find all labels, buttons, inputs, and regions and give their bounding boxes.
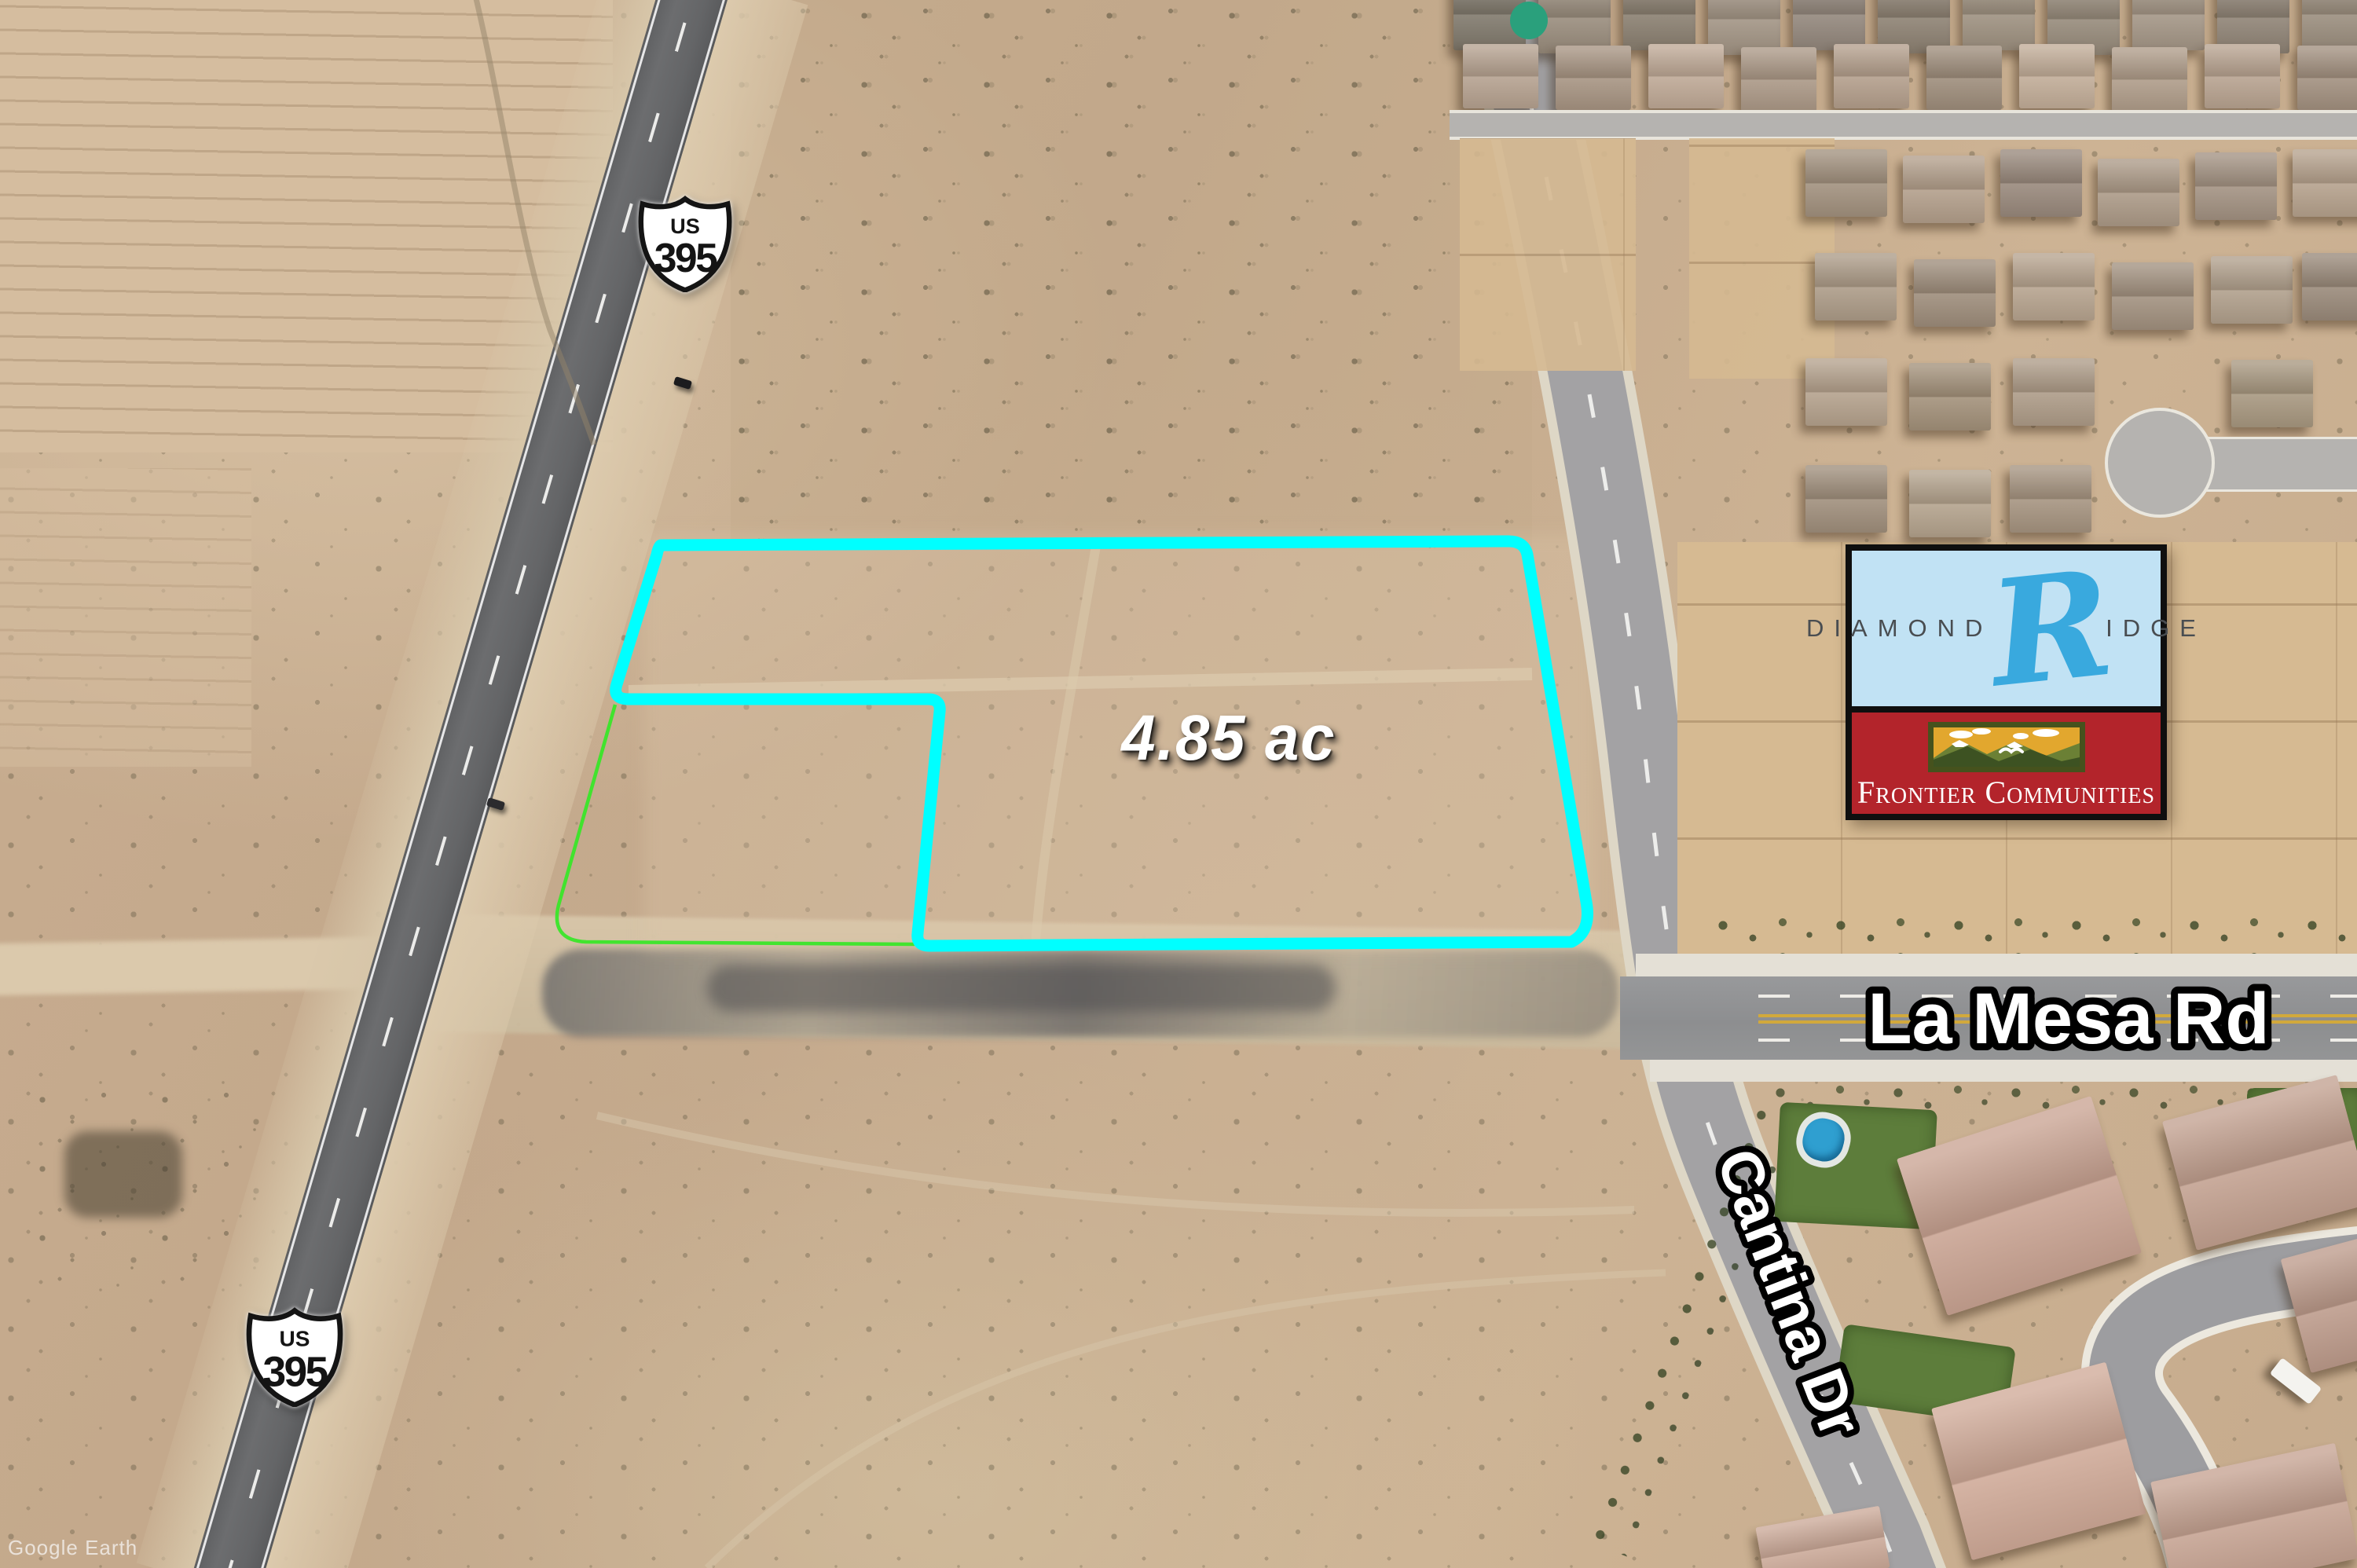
house bbox=[2010, 465, 2091, 533]
dirt-track bbox=[1036, 546, 1096, 943]
house bbox=[2000, 149, 2082, 217]
house bbox=[2211, 256, 2293, 324]
house bbox=[2112, 47, 2187, 112]
house bbox=[1815, 253, 1897, 321]
house bbox=[2205, 44, 2280, 108]
shield-number: 395 bbox=[263, 1349, 328, 1395]
house bbox=[2112, 262, 2194, 330]
house bbox=[2297, 46, 2357, 110]
house bbox=[1793, 0, 1865, 50]
house bbox=[2302, 0, 2357, 50]
dirt-track bbox=[629, 674, 1532, 691]
sign-word-idge: IDGE bbox=[2106, 614, 2206, 643]
la-mesa-asphalt bbox=[1620, 976, 2357, 1060]
diamond-ridge-panel: DIAMOND R IDGE bbox=[1852, 551, 2161, 706]
house bbox=[1805, 465, 1887, 533]
road-sidewalk bbox=[1650, 1060, 2357, 1082]
lane-dashes bbox=[1758, 995, 2357, 998]
house bbox=[1648, 44, 1724, 108]
house bbox=[2132, 0, 2205, 50]
house bbox=[1623, 0, 1695, 50]
aerial-map: La Mesa Rd Cantina Dr 4.85 ac US 395 US … bbox=[0, 0, 2357, 1568]
house bbox=[1909, 470, 1991, 537]
dirt-track bbox=[597, 1116, 1634, 1213]
frontier-communities-panel: Frontier Communities bbox=[1852, 706, 2161, 814]
house bbox=[2019, 44, 2095, 108]
us-395-shield: US 395 bbox=[240, 1306, 350, 1407]
center-line bbox=[1758, 1020, 2357, 1024]
house bbox=[1963, 0, 2035, 50]
house bbox=[1805, 149, 1887, 217]
lane-dashes bbox=[1758, 1039, 2357, 1042]
cul-de-sac bbox=[2105, 408, 2215, 518]
parcel-area-label: 4.85 ac bbox=[1121, 702, 1336, 775]
frontier-communities-label: Frontier Communities bbox=[1857, 774, 2155, 811]
graded-lot bbox=[1460, 138, 1636, 371]
desert-wash bbox=[475, 0, 594, 445]
shield-system: US bbox=[280, 1327, 310, 1351]
house bbox=[1463, 44, 1538, 108]
house bbox=[2231, 360, 2313, 427]
house bbox=[2302, 253, 2357, 321]
sign-initial-r: R bbox=[1988, 583, 2116, 674]
dirt-track bbox=[707, 1273, 1666, 1568]
mountain-emblem-icon bbox=[1928, 722, 2085, 772]
us-395-shield: US 395 bbox=[634, 195, 736, 292]
house bbox=[1926, 46, 2002, 110]
road-sidewalk bbox=[1636, 954, 2357, 977]
house bbox=[2293, 149, 2357, 217]
center-line bbox=[1758, 1014, 2357, 1017]
house bbox=[1914, 259, 1996, 327]
house bbox=[1909, 363, 1991, 430]
residential-street bbox=[1450, 110, 2357, 140]
house bbox=[1556, 46, 1631, 110]
house bbox=[2195, 152, 2277, 220]
house bbox=[2013, 253, 2095, 321]
developer-sign: DIAMOND R IDGE Frontier Communities bbox=[1846, 544, 2167, 820]
house bbox=[1741, 47, 1816, 112]
house bbox=[1903, 156, 1985, 223]
house bbox=[2013, 358, 2095, 426]
residential-street bbox=[2204, 437, 2357, 492]
house bbox=[1805, 358, 1887, 426]
pool-cover bbox=[1510, 2, 1548, 39]
google-earth-watermark: Google Earth bbox=[8, 1536, 137, 1560]
house bbox=[2098, 159, 2179, 226]
house bbox=[1834, 44, 1909, 108]
shrub-strip bbox=[1709, 914, 2357, 954]
shield-number: 395 bbox=[654, 235, 717, 280]
sign-word-diamond: DIAMOND bbox=[1806, 614, 1992, 643]
